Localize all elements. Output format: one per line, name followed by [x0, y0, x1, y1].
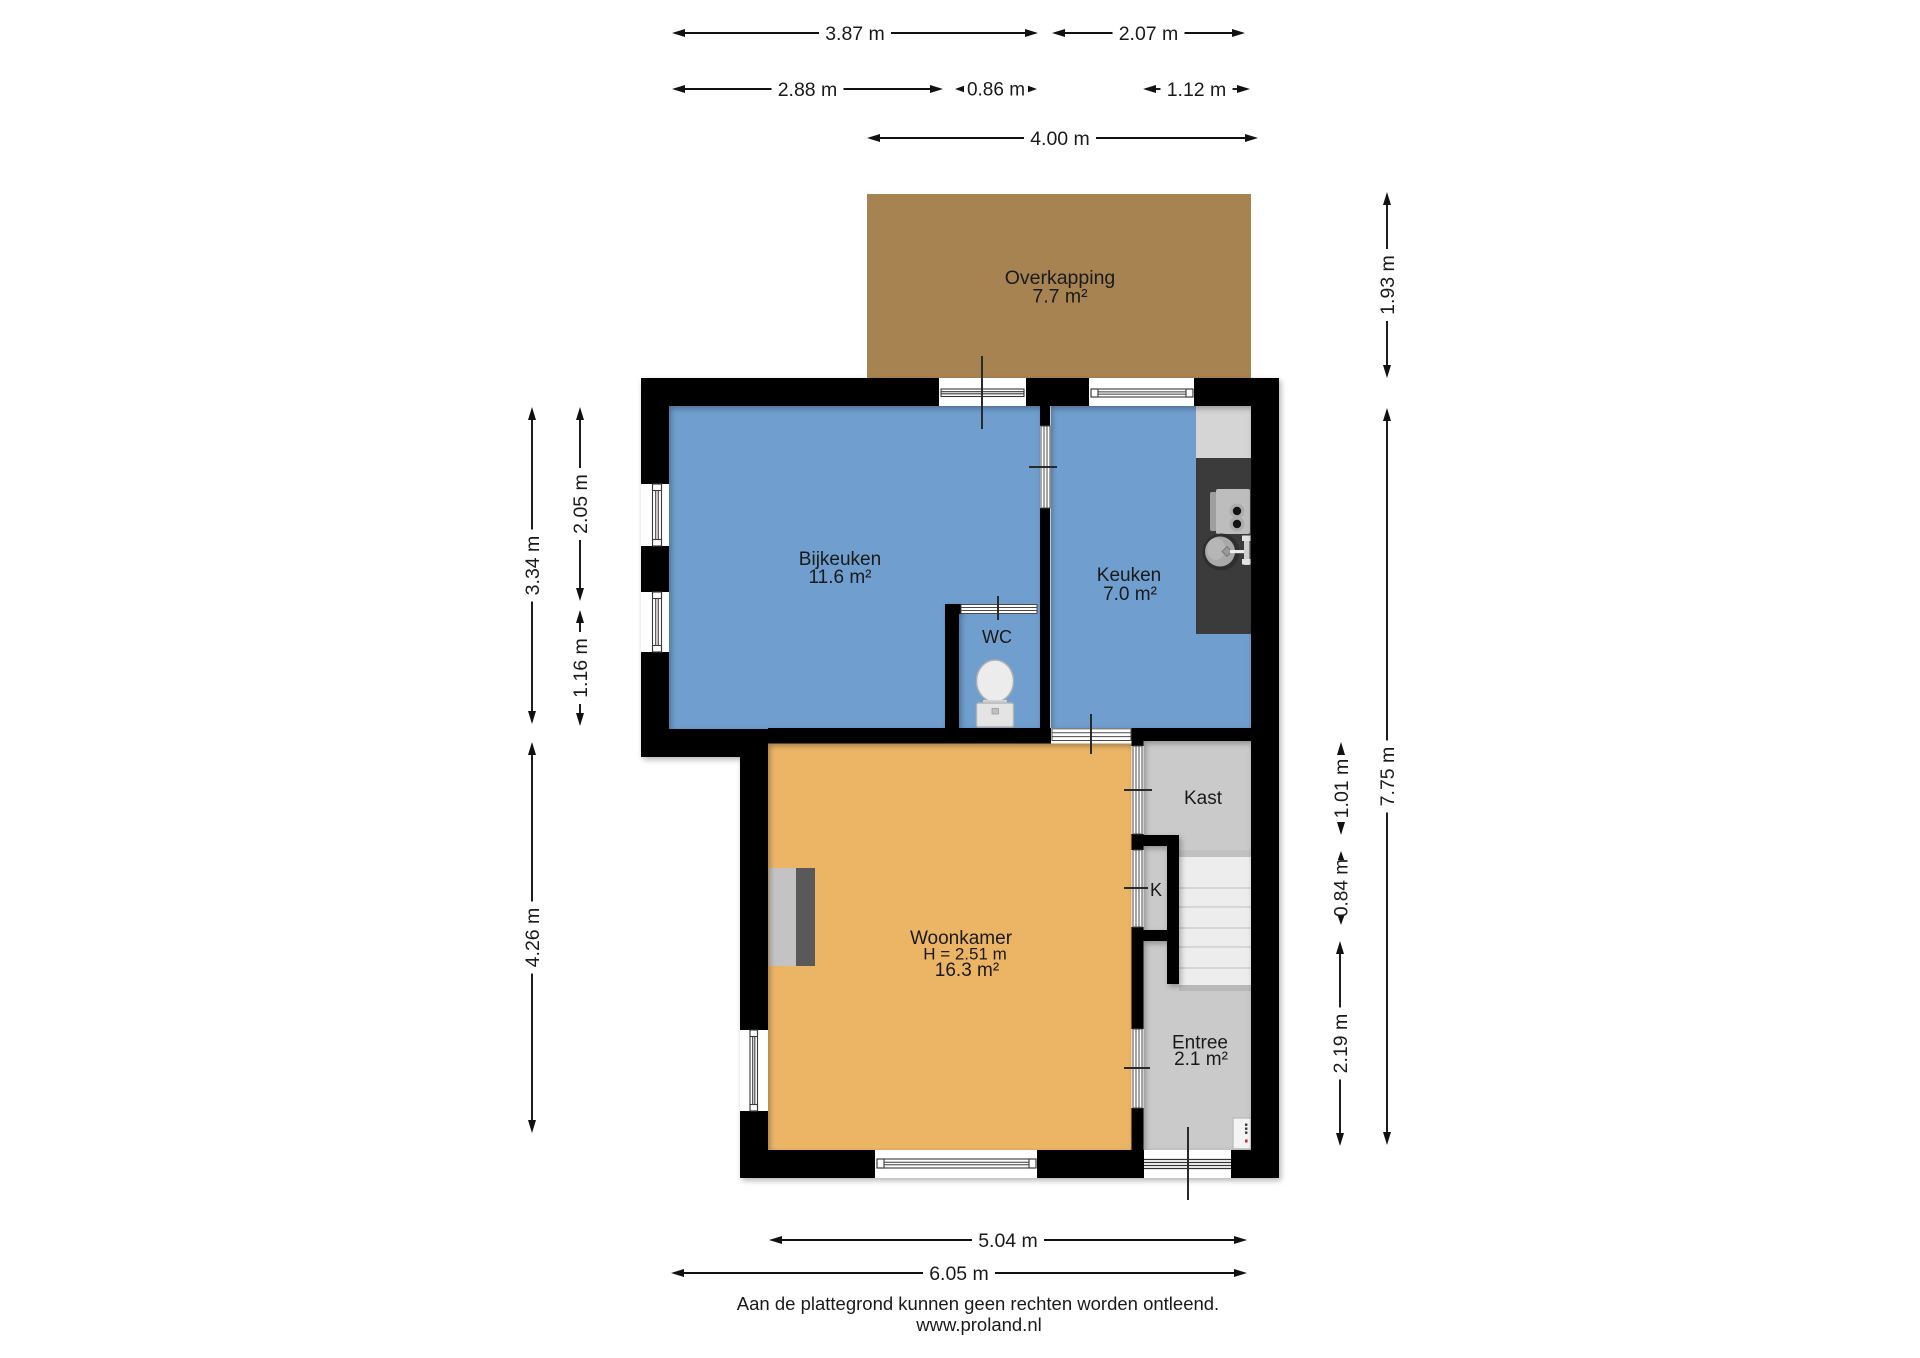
svg-text:7.7 m²: 7.7 m² [1032, 286, 1088, 308]
svg-text:7.0 m²: 7.0 m² [1103, 584, 1157, 605]
svg-text:www.proland.nl: www.proland.nl [915, 1314, 1041, 1335]
svg-text:0.84 m: 0.84 m [1332, 859, 1353, 917]
svg-text:0.86 m: 0.86 m [967, 80, 1025, 101]
svg-text:1.16 m: 1.16 m [570, 638, 592, 698]
svg-text:2.05 m: 2.05 m [570, 474, 592, 534]
svg-text:5.04 m: 5.04 m [978, 1230, 1038, 1252]
svg-text:16.3 m²: 16.3 m² [935, 960, 999, 981]
svg-text:WC: WC [982, 627, 1012, 647]
svg-text:3.87 m: 3.87 m [825, 23, 885, 45]
svg-text:1.93 m: 1.93 m [1377, 255, 1399, 315]
svg-text:Aan de plattegrond kunnen geen: Aan de plattegrond kunnen geen rechten w… [737, 1293, 1219, 1314]
svg-text:K: K [1150, 880, 1162, 900]
svg-text:6.05 m: 6.05 m [929, 1263, 989, 1285]
svg-text:2.07 m: 2.07 m [1119, 23, 1179, 45]
svg-text:7.75 m: 7.75 m [1377, 747, 1399, 807]
svg-text:11.6 m²: 11.6 m² [808, 567, 871, 588]
svg-text:1.12 m: 1.12 m [1167, 79, 1227, 101]
svg-text:4.26 m: 4.26 m [522, 908, 544, 968]
svg-text:2.19 m: 2.19 m [1330, 1014, 1352, 1074]
svg-text:3.34 m: 3.34 m [522, 536, 544, 596]
svg-text:Keuken: Keuken [1097, 565, 1161, 586]
svg-text:4.00 m: 4.00 m [1030, 128, 1090, 150]
svg-text:Kast: Kast [1184, 788, 1223, 809]
svg-text:2.1 m²: 2.1 m² [1174, 1049, 1228, 1070]
svg-text:1.01 m: 1.01 m [1331, 759, 1353, 819]
svg-text:2.88 m: 2.88 m [778, 79, 838, 101]
